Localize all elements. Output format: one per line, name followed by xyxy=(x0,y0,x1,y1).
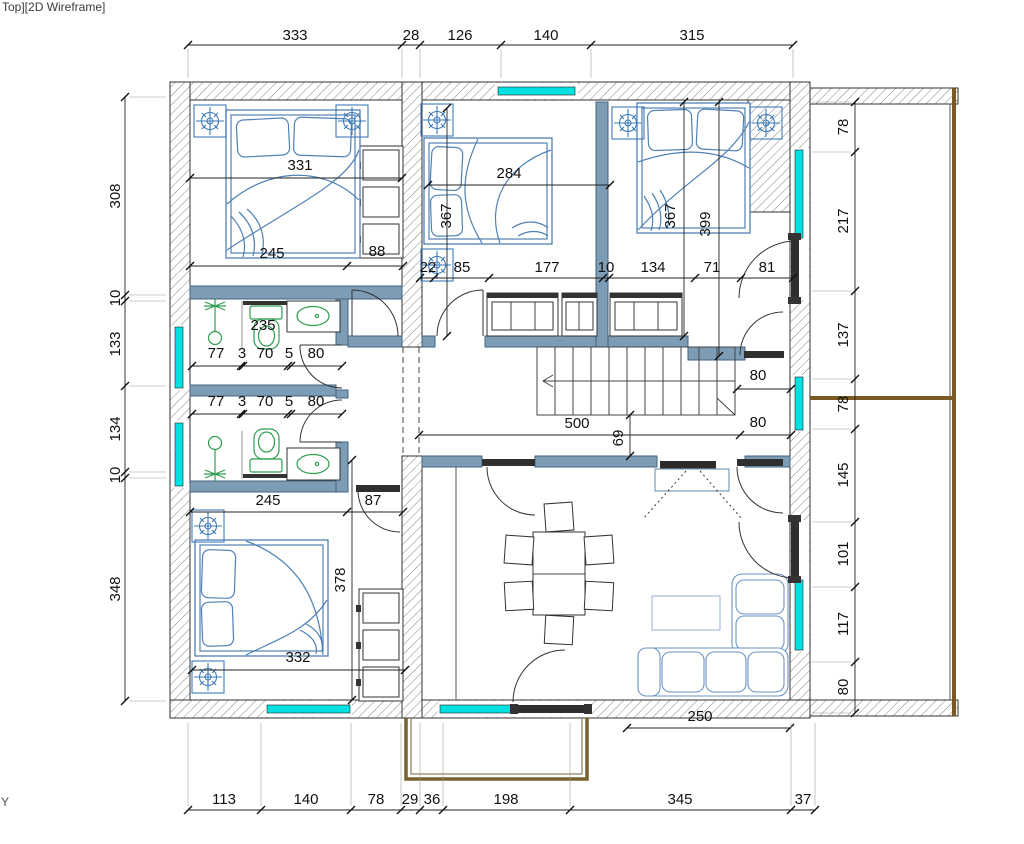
dimension-text: 29 xyxy=(402,791,419,808)
dimension-text: 36 xyxy=(424,791,441,808)
sofa xyxy=(638,574,788,696)
window-bed4-bottom xyxy=(267,705,350,713)
dimension-text: 348 xyxy=(107,576,124,601)
stair-direction-arrow xyxy=(543,375,735,387)
dimension-text: 245 xyxy=(255,492,280,509)
dimension-text: 78 xyxy=(368,791,385,808)
balcony-wall-top xyxy=(810,88,958,104)
dimension-text: 88 xyxy=(369,243,386,260)
dimension-text: 101 xyxy=(835,541,852,566)
bed-bedroom4 xyxy=(195,540,328,656)
dimension-text: 70 xyxy=(257,393,274,410)
dimension-text: 217 xyxy=(835,208,852,233)
sink xyxy=(287,448,340,480)
floor-plan-drawing: Top][2D Wireframe] Y xyxy=(0,0,1024,844)
dimension-text: 77 xyxy=(208,345,225,362)
dimension-text: 37 xyxy=(795,791,812,808)
dimension-text: 133 xyxy=(107,331,124,356)
dimension-text: 367 xyxy=(438,203,455,228)
window-bath2-left xyxy=(175,423,183,486)
dimension-text: 145 xyxy=(835,462,852,487)
dimension-text: 28 xyxy=(403,27,420,44)
dimension-text: 78 xyxy=(835,396,852,413)
dimension-text: 117 xyxy=(835,612,852,636)
dimension-text: 378 xyxy=(332,567,349,592)
wall-partition-lower xyxy=(402,456,422,718)
dimension-text: 134 xyxy=(107,416,124,441)
dimension-text: 177 xyxy=(534,259,559,276)
dimension-text: 3 xyxy=(238,393,246,410)
balcony-wall-bottom xyxy=(810,700,958,716)
window-bed3-right xyxy=(795,150,803,238)
window-hall-right xyxy=(795,377,803,430)
sink xyxy=(287,301,340,332)
dimension-text: 22 xyxy=(420,259,437,276)
tv-viewing-lines xyxy=(643,471,742,519)
tv-unit xyxy=(643,461,742,519)
window-bath1-left xyxy=(175,327,183,388)
balcony xyxy=(810,88,956,716)
dimension-text: 5 xyxy=(285,345,293,362)
dimension-text: 367 xyxy=(662,203,679,228)
dimension-text: 71 xyxy=(704,259,721,276)
dimension-text: 140 xyxy=(293,791,318,808)
dimension-text: 10 xyxy=(598,259,615,276)
dimension-text: 245 xyxy=(259,245,284,262)
dimension-text: 140 xyxy=(533,27,558,44)
dimension-text: 333 xyxy=(282,27,307,44)
dimension-text: 134 xyxy=(640,259,665,276)
dimension-text: 250 xyxy=(687,708,712,725)
balcony-door-living xyxy=(791,522,799,578)
dimension-text: 85 xyxy=(454,259,471,276)
dimension-text: 331 xyxy=(287,157,312,174)
chair xyxy=(584,581,613,610)
corridor-closets xyxy=(487,293,682,336)
dimension-text: 80 xyxy=(308,393,325,410)
corridor-dashed-lines xyxy=(403,347,419,456)
dimension-text: 332 xyxy=(285,649,310,666)
dimension-text: 70 xyxy=(257,345,274,362)
shower-fixture xyxy=(204,437,226,483)
dimension-text: 198 xyxy=(493,791,518,808)
dimension-text: 81 xyxy=(759,259,776,276)
bed-bedroom1 xyxy=(226,110,360,258)
wall-block-top-right xyxy=(748,100,790,212)
dimension-text: 137 xyxy=(835,322,852,347)
dimension-text: 10 xyxy=(107,290,124,307)
entry-porch xyxy=(406,718,587,779)
chair xyxy=(504,581,533,610)
dimension-text: 77 xyxy=(208,393,225,410)
dimension-text: 308 xyxy=(107,183,124,208)
dimension-text: 315 xyxy=(679,27,704,44)
dimension-text: 69 xyxy=(610,430,627,447)
coffee-table xyxy=(652,596,720,630)
toilet xyxy=(250,429,282,472)
dimension-text: 113 xyxy=(212,791,236,808)
dimension-text: 126 xyxy=(447,27,472,44)
wall-partition-upper xyxy=(402,82,422,347)
dimension-text: 78 xyxy=(835,119,852,136)
dimension-text: 284 xyxy=(496,165,521,182)
dimension-text: 345 xyxy=(667,791,692,808)
dimension-text: 5 xyxy=(285,393,293,410)
dimension-text: 500 xyxy=(564,415,589,432)
wardrobe-bedroom1 xyxy=(356,146,403,258)
dimension-text: 235 xyxy=(250,317,275,334)
window-living-right xyxy=(795,580,803,650)
shower-fixture xyxy=(204,298,226,345)
dimension-text: 80 xyxy=(750,367,767,384)
ucs-y-axis-label: Y xyxy=(1,795,9,809)
cad-viewport[interactable]: Top][2D Wireframe] Y xyxy=(0,0,1024,844)
dimension-text: 80 xyxy=(750,414,767,431)
balcony-door-bed3 xyxy=(791,240,799,297)
entry-door xyxy=(518,705,588,713)
window-entry-bottom xyxy=(440,705,518,713)
dimension-text: 80 xyxy=(835,679,852,696)
dimension-text: 80 xyxy=(308,345,325,362)
chair xyxy=(544,615,573,644)
dimension-text: 10 xyxy=(107,467,124,484)
chair xyxy=(584,535,614,565)
chair xyxy=(544,502,574,532)
balcony-edge-right xyxy=(952,88,956,716)
chair xyxy=(504,535,534,565)
window-bed2-top xyxy=(498,87,575,95)
dimension-text: 87 xyxy=(365,492,382,509)
dimension-text: 399 xyxy=(697,211,714,236)
wall-top xyxy=(170,82,810,100)
dining-set xyxy=(504,502,614,645)
bed-bedroom3 xyxy=(637,103,750,233)
wardrobe-bedroom4 xyxy=(356,589,403,701)
viewport-controls-label[interactable]: Top][2D Wireframe] xyxy=(2,0,105,14)
wall-left xyxy=(170,82,190,718)
balcony-divider xyxy=(810,396,952,400)
dimension-text: 3 xyxy=(238,345,246,362)
